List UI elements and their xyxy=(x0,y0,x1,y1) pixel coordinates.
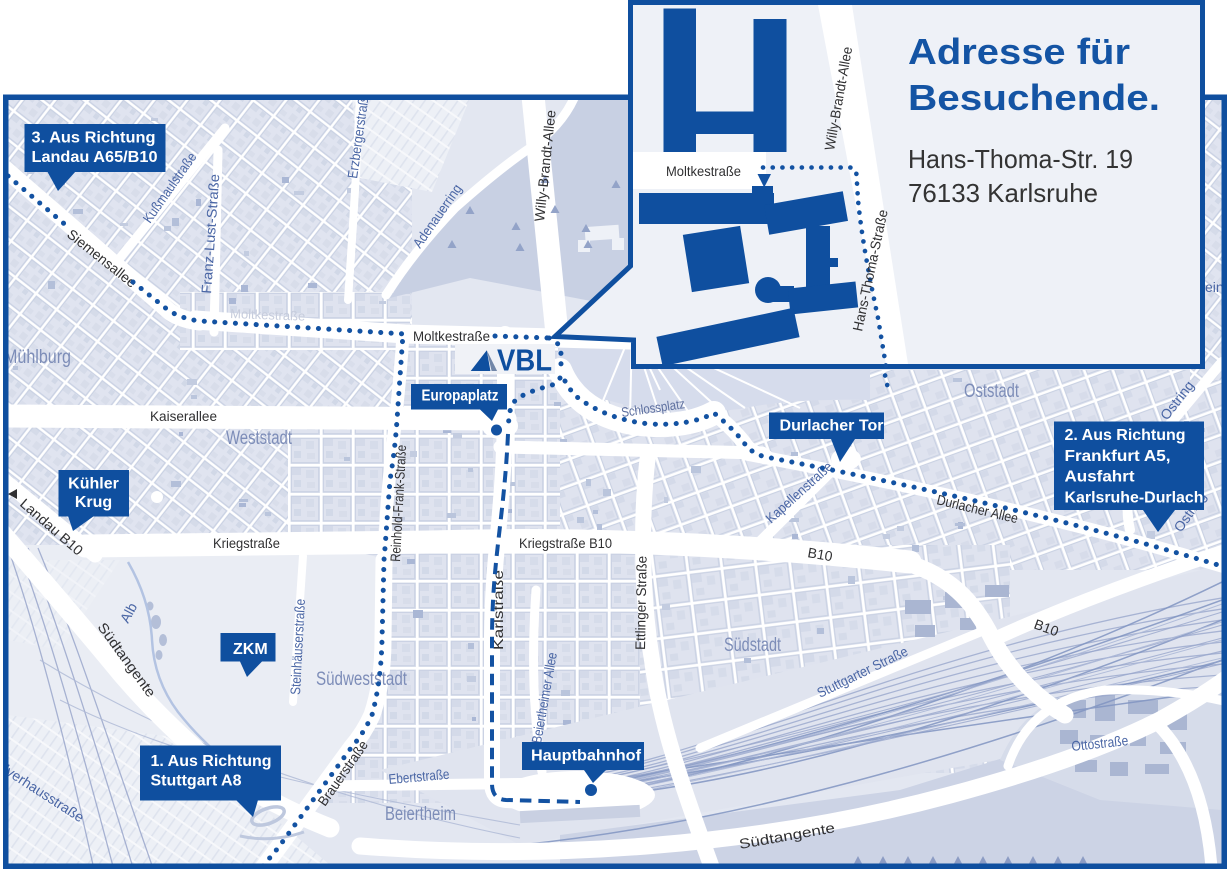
svg-text:Karlsruhe-Durlach: Karlsruhe-Durlach xyxy=(1065,489,1204,506)
svg-text:Besuchende.: Besuchende. xyxy=(908,77,1160,118)
svg-text:Adresse für: Adresse für xyxy=(908,31,1130,72)
svg-text:Landau A65/B10: Landau A65/B10 xyxy=(32,149,158,166)
svg-text:Beiertheim: Beiertheim xyxy=(385,804,456,825)
svg-text:1. Aus Richtung: 1. Aus Richtung xyxy=(151,753,272,770)
svg-text:Kaiserallee: Kaiserallee xyxy=(150,408,217,424)
svg-text:76133 Karlsruhe: 76133 Karlsruhe xyxy=(908,178,1098,208)
svg-text:ZKM: ZKM xyxy=(233,641,268,658)
svg-text:Kriegstraße B10: Kriegstraße B10 xyxy=(519,535,612,551)
svg-text:Kühler: Kühler xyxy=(68,476,119,493)
svg-text:Moltkestraße: Moltkestraße xyxy=(230,306,306,324)
svg-text:Kriegstraße: Kriegstraße xyxy=(213,535,280,551)
svg-text:Hauptbahnhof: Hauptbahnhof xyxy=(531,747,642,764)
svg-text:Moltkestraße: Moltkestraße xyxy=(666,163,741,179)
svg-text:Moltkestraße: Moltkestraße xyxy=(413,328,490,344)
svg-text:Mühlburg: Mühlburg xyxy=(4,347,71,368)
svg-text:Südstadt: Südstadt xyxy=(724,635,782,656)
svg-text:ein: ein xyxy=(1205,279,1224,295)
svg-text:Frankfurt A5,: Frankfurt A5, xyxy=(1065,448,1171,465)
svg-text:Ausfahrt: Ausfahrt xyxy=(1065,469,1136,486)
svg-text:2. Aus Richtung: 2. Aus Richtung xyxy=(1065,427,1186,444)
svg-text:Europaplatz: Europaplatz xyxy=(422,388,499,405)
svg-text:Hans-Thoma-Str. 19: Hans-Thoma-Str. 19 xyxy=(908,144,1133,174)
svg-text:3. Aus Richtung: 3. Aus Richtung xyxy=(32,130,156,147)
svg-text:Oststadt: Oststadt xyxy=(964,381,1020,402)
svg-text:Ettlinger Straße: Ettlinger Straße xyxy=(632,556,650,650)
svg-text:Weststadt: Weststadt xyxy=(226,428,293,449)
svg-text:Stuttgart A8: Stuttgart A8 xyxy=(151,773,242,790)
svg-text:Südweststadt: Südweststadt xyxy=(316,669,408,690)
svg-text:Krug: Krug xyxy=(75,494,112,511)
svg-text:Durlacher Tor: Durlacher Tor xyxy=(780,418,884,435)
svg-text:VBL: VBL xyxy=(497,344,552,378)
